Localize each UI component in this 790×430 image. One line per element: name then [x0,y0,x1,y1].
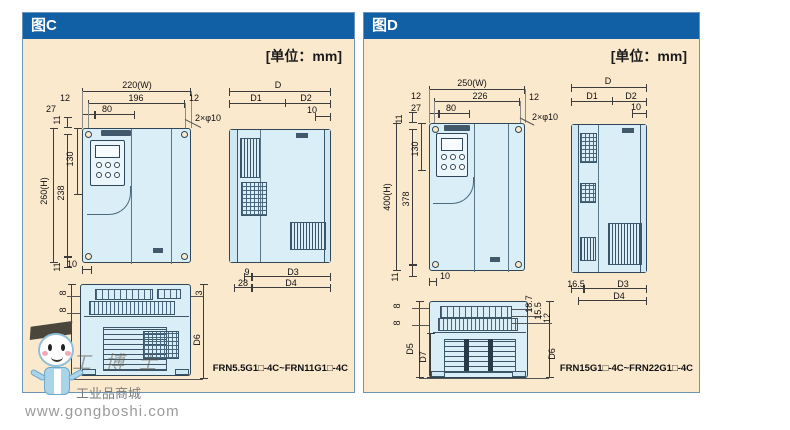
dim-label: 12 [189,93,199,103]
dim-label: 226 [472,91,487,101]
dim-label: 400(H) [382,183,392,211]
dim-label: D3 [617,279,629,289]
front-view-drawing [429,123,525,271]
bottom-view-drawing [429,301,528,378]
mascot-body [44,367,70,395]
dim-label: 12 [60,93,70,103]
dim-label: 3 [194,290,204,295]
dim-label: 238 [56,185,66,200]
dim-label: 220(W) [122,80,152,90]
dim-label: D4 [285,278,297,288]
dim-label: 8 [58,307,68,312]
figure-c-header: 图C [23,13,354,39]
dim-label: 2×φ10 [532,112,558,122]
figure-c-title: 图C [31,17,57,34]
figure-d-panel: 图D [单位：mm] [363,12,700,393]
dim-label: D [605,76,612,86]
dim-label: 11 [390,272,400,281]
mounting-hole [515,126,522,133]
keypad-display [95,145,120,158]
dim-label: 16.5 [567,279,585,289]
keypad-cover-seam [433,177,474,204]
dim-label: 11 [52,262,62,271]
dim-label: 2×φ10 [195,113,221,123]
dim-label: D [275,80,282,90]
dim-label: 27 [411,103,421,113]
dim-label: 28 [238,278,248,288]
unit-label: [单位：mm] [266,46,342,66]
top-cover [444,125,470,131]
side-view-drawing [571,124,647,273]
top-cover [101,130,131,136]
dim-label: D3 [287,267,299,277]
model-range-label: FRN5.5G1□-4C~FRN11G1□-4C [213,363,348,374]
dim-label: 8 [392,303,402,308]
dim-label: D4 [613,291,625,301]
mounting-hole [181,253,188,260]
dim-label: D2 [625,91,637,101]
dim-label: 196 [128,93,143,103]
dim-label: D6 [192,334,202,346]
side-view-drawing [229,129,331,263]
keypad [90,140,125,186]
unit-label: [单位：mm] [611,46,687,66]
watermark-url-text: www.gongboshi.com [25,403,180,420]
brand-mark [153,248,163,253]
keypad-display [441,138,463,151]
dim-label: 12 [411,91,421,101]
dim-label: 12 [542,313,552,323]
mounting-hole [432,126,439,133]
dim-label: 80 [446,103,456,113]
figure-d-header: 图D [364,13,699,39]
dim-label: 10 [67,259,77,269]
dim-label: 130 [410,141,420,156]
dim-label: D7 [418,351,428,363]
dim-label: 130 [65,151,75,166]
dim-label: 80 [102,104,112,114]
dim-label: 11 [52,115,62,124]
mascot-logo [28,324,98,404]
mounting-hole [432,261,439,268]
dim-label: 9 [244,267,249,277]
front-view-drawing [82,128,191,263]
dim-label: D6 [547,348,557,360]
dim-label: 10 [631,102,641,112]
dim-label: 11 [394,114,404,123]
brand-mark [490,257,500,262]
mascot-head [38,333,74,367]
figure-d-title: 图D [372,17,398,34]
page: 图C [单位：mm] [0,0,790,430]
dim-label: 10 [440,271,450,281]
dim-label: 8 [392,320,402,325]
dim-label: 27 [46,104,56,114]
dim-label: 250(W) [457,78,487,88]
dim-label: D1 [250,93,262,103]
keypad [436,133,468,177]
keypad-cover-seam [87,186,131,215]
dim-label: 12 [529,92,539,102]
dim-label: 260(H) [39,177,49,205]
mounting-hole [181,131,188,138]
mounting-hole [85,253,92,260]
dim-label: 378 [401,191,411,206]
dim-label: D2 [300,93,312,103]
dim-label: 10 [307,105,317,115]
dim-label: D1 [586,91,598,101]
model-range-label: FRN15G1□-4C~FRN22G1□-4C [560,363,693,374]
dim-label: D5 [405,343,415,355]
mounting-hole [515,261,522,268]
mounting-hole [85,131,92,138]
dim-label: 8 [58,290,68,295]
